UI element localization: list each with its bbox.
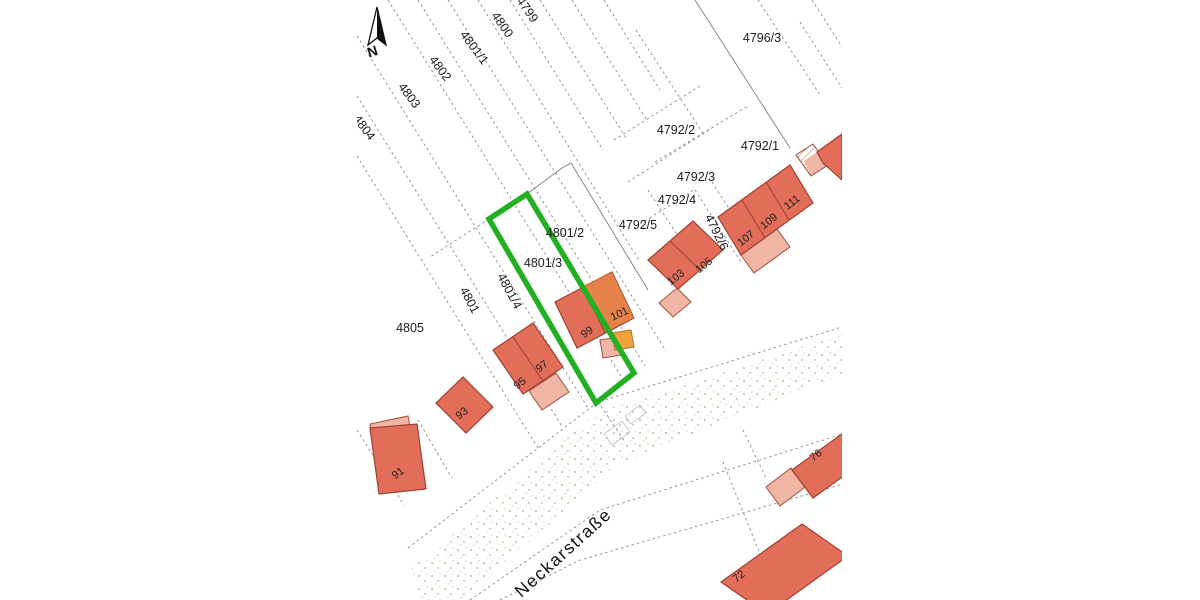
parcel-label-4799: 4799 (514, 0, 541, 25)
parcel-label-4792-1: 4792/1 (741, 139, 779, 153)
cadastral-map: N 4796/3 4792/2 4792/1 4792/3 4792/4 479… (357, 0, 842, 600)
parcel-label-4801: 4801 (457, 285, 482, 316)
parcel-label-4804: 4804 (357, 112, 378, 143)
building-93 (436, 377, 493, 433)
parcel-label-4803: 4803 (395, 80, 423, 111)
parcel-label-4796-3: 4796/3 (743, 31, 781, 45)
building-edge-top-right (817, 134, 842, 180)
parcel-label-4801-1: 4801/1 (457, 28, 491, 67)
parcel-label-4792-5: 4792/5 (619, 218, 657, 232)
parcel-label-4792-2: 4792/2 (657, 123, 695, 137)
parcel-label-4801-3: 4801/3 (524, 256, 562, 270)
parcel-label-4801-2: 4801/2 (546, 226, 584, 240)
parcel-label-4802: 4802 (426, 53, 454, 84)
parcel-label-4805: 4805 (396, 321, 424, 335)
parcel-label-4800: 4800 (489, 9, 516, 40)
building-72 (721, 524, 842, 600)
building-annex-103 (659, 288, 691, 317)
north-arrow-icon: N (365, 7, 386, 60)
parcel-label-4792-4: 4792/4 (658, 193, 696, 207)
map-canvas: N 4796/3 4792/2 4792/1 4792/3 4792/4 479… (357, 0, 842, 600)
parcel-label-4792-3: 4792/3 (677, 170, 715, 184)
parcel-labels: 4796/3 4792/2 4792/1 4792/3 4792/4 4792/… (357, 0, 781, 335)
building-91 (370, 424, 426, 494)
north-arrow-letter: N (365, 42, 380, 60)
